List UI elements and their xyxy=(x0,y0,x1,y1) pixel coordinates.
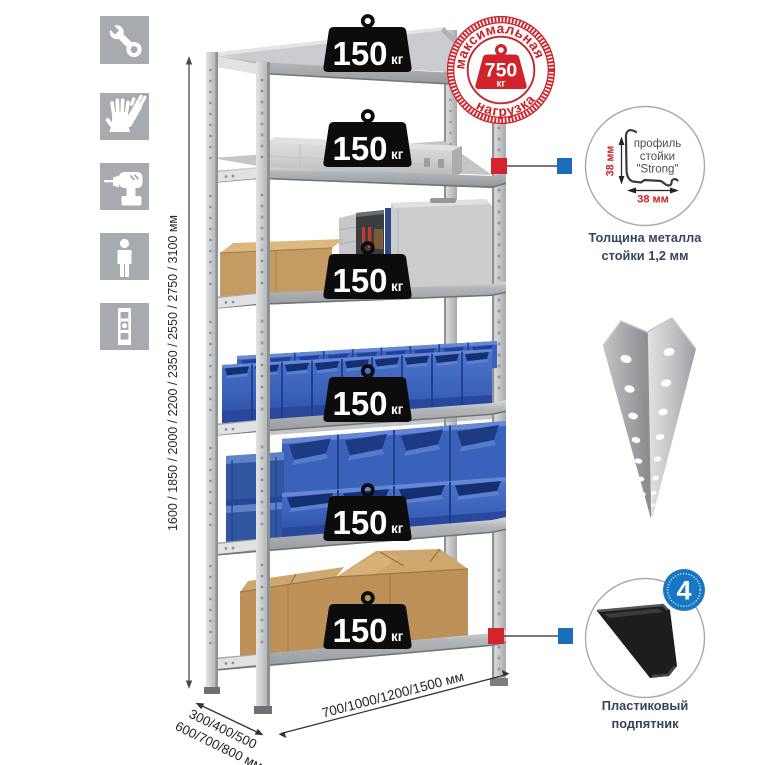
svg-text:профиль: профиль xyxy=(634,138,682,150)
svg-text:150: 150 xyxy=(332,385,387,422)
svg-text:стойки 1,2 мм: стойки 1,2 мм xyxy=(601,248,688,263)
svg-text:подпятник: подпятник xyxy=(612,716,680,731)
svg-text:кг: кг xyxy=(391,629,404,644)
svg-text:700/1000/1200/1500 мм: 700/1000/1200/1500 мм xyxy=(320,669,465,721)
svg-text:кг: кг xyxy=(496,79,505,90)
svg-text:кг: кг xyxy=(391,521,404,536)
svg-text:кг: кг xyxy=(391,279,404,294)
svg-text:стойки: стойки xyxy=(640,151,675,163)
svg-text:150: 150 xyxy=(332,504,387,541)
svg-text:Толщина металла: Толщина металла xyxy=(589,230,703,245)
svg-text:"Strong": "Strong" xyxy=(636,164,678,176)
svg-text:150: 150 xyxy=(332,612,387,649)
svg-text:Пластиковый: Пластиковый xyxy=(602,698,688,713)
svg-text:150: 150 xyxy=(332,262,387,299)
svg-text:150: 150 xyxy=(332,130,387,167)
svg-text:кг: кг xyxy=(391,402,404,417)
svg-text:38 мм: 38 мм xyxy=(637,194,669,206)
svg-text:38 мм: 38 мм xyxy=(605,146,617,177)
svg-text:1600 / 1850 / 2000 / 2200 / 23: 1600 / 1850 / 2000 / 2200 / 2350 / 2550 … xyxy=(166,215,180,531)
svg-text:4: 4 xyxy=(676,576,691,606)
svg-text:кг: кг xyxy=(391,147,404,162)
svg-text:150: 150 xyxy=(332,35,387,72)
svg-text:кг: кг xyxy=(391,52,404,67)
